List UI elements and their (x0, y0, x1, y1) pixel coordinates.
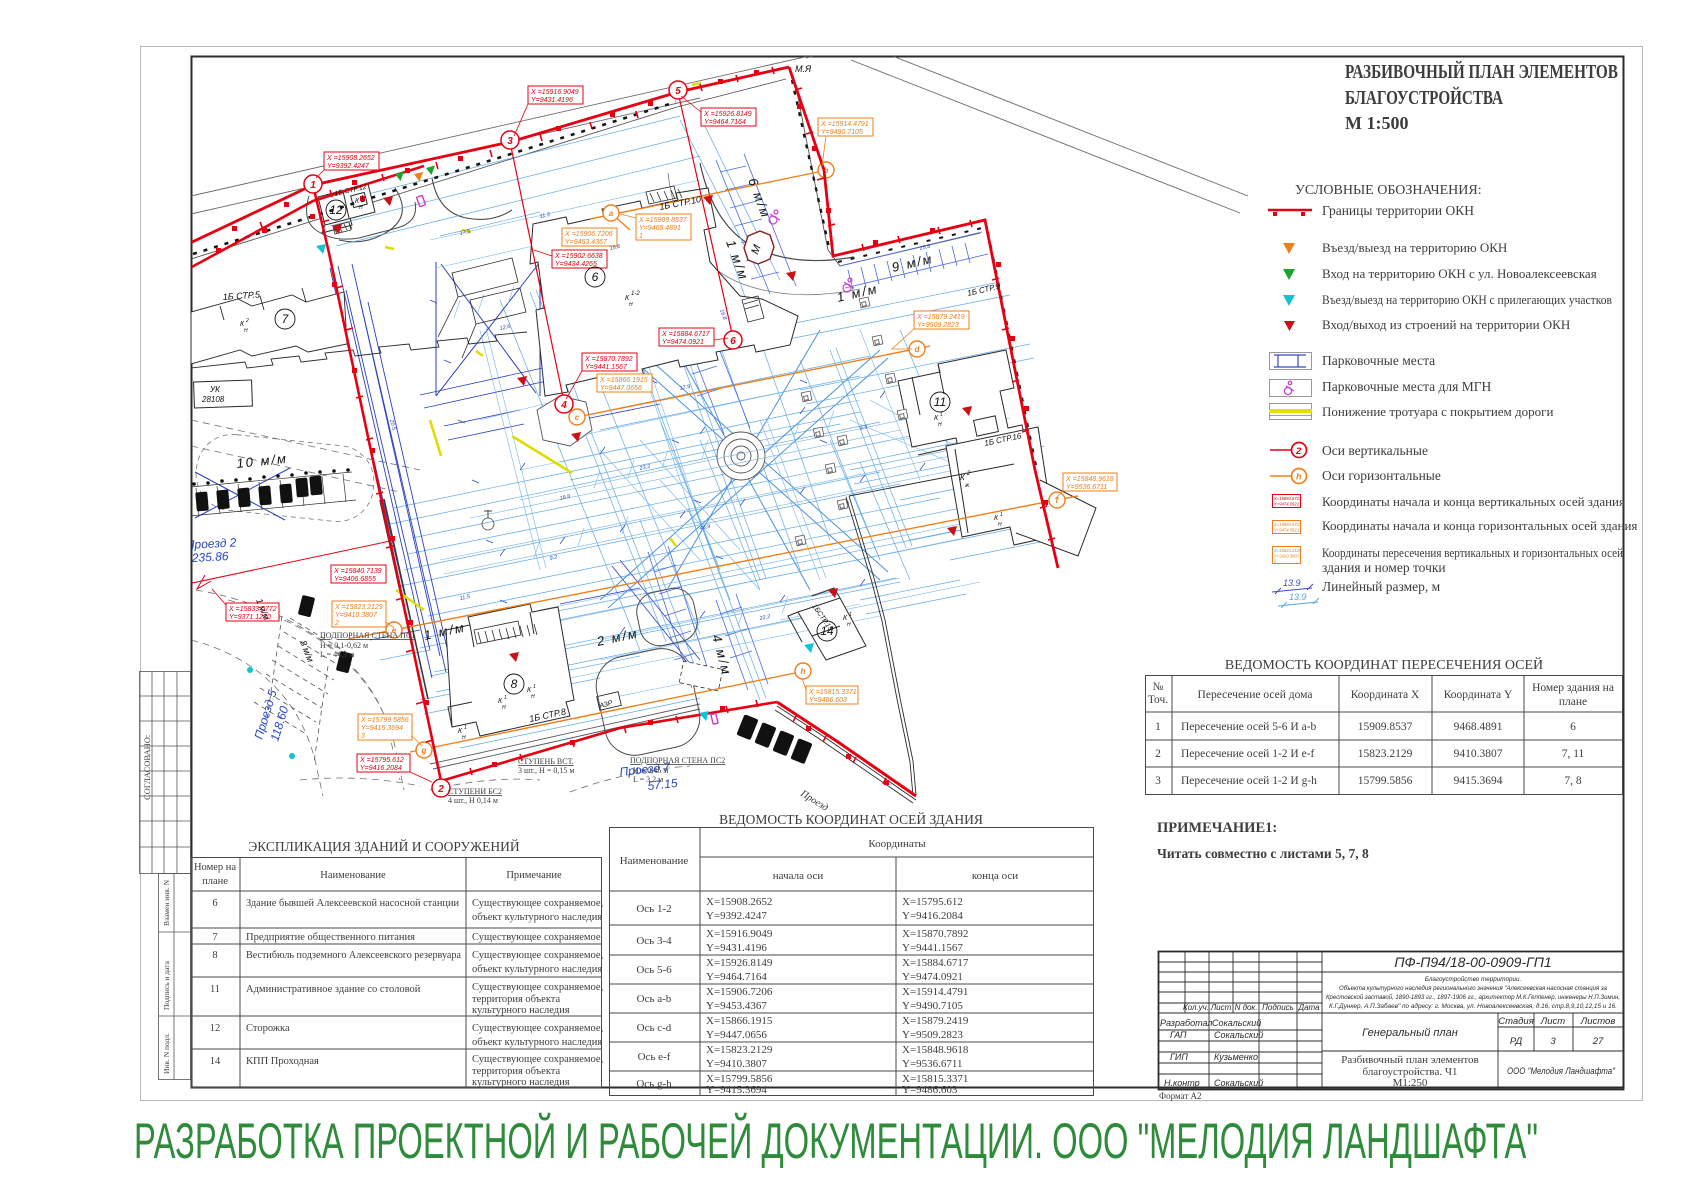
svg-text:7, 11: 7, 11 (1562, 748, 1585, 760)
svg-text:235.86: 235.86 (190, 549, 229, 565)
svg-text:13.9: 13.9 (1289, 592, 1307, 602)
svg-text:1: 1 (639, 233, 643, 240)
svg-text:1: 1 (1155, 721, 1161, 733)
svg-text:Y=9410.3807: Y=9410.3807 (335, 612, 378, 619)
svg-text:X =15866.1915: X =15866.1915 (599, 377, 648, 384)
svg-text:Генеральный план: Генеральный план (1362, 1027, 1458, 1039)
svg-text:X =15823.2129: X =15823.2129 (334, 604, 383, 611)
svg-text:Административное здание со сто: Административное здание со столовой (246, 984, 421, 995)
svg-text:РД: РД (1510, 1036, 1523, 1047)
svg-text:5: 5 (675, 86, 681, 97)
svg-text:Пересечение осей 1-2 И e-f: Пересечение осей 1-2 И e-f (1181, 748, 1315, 760)
svg-text:РАЗРАБОТКА ПРОЕКТНОЙ И РАБОЧЕЙ: РАЗРАБОТКА ПРОЕКТНОЙ И РАБОЧЕЙ ДОКУМЕНТА… (134, 1112, 1538, 1169)
svg-text:Y=9486.603: Y=9486.603 (809, 697, 847, 704)
svg-text:15799.5856: 15799.5856 (1358, 775, 1413, 787)
svg-text:Формат А2: Формат А2 (1159, 1091, 1202, 1101)
svg-text:4: 4 (560, 400, 567, 411)
svg-text:X =15926.8149: X =15926.8149 (703, 111, 752, 118)
svg-text:1-2: 1-2 (631, 291, 640, 297)
svg-text:Вестибюль подземного Алексеевс: Вестибюль подземного Алексеевского резер… (246, 950, 461, 961)
svg-text:Пересечение осей 5-6 И a-b: Пересечение осей 5-6 И a-b (1181, 721, 1317, 733)
svg-text:Y=9474.0921: Y=9474.0921 (902, 971, 963, 983)
svg-text:2: 2 (245, 318, 249, 324)
svg-text:15909.8537: 15909.8537 (1358, 721, 1413, 733)
svg-text:Координата Y: Координата Y (1444, 689, 1513, 701)
svg-text:ж: ж (964, 483, 970, 489)
svg-text:Стадия: Стадия (1498, 1016, 1534, 1027)
svg-text:объект культурного наследия: объект культурного наследия (472, 912, 602, 923)
svg-text:Подпись и дата: Подпись и дата (162, 960, 171, 1010)
svg-text:2: 2 (1295, 446, 1302, 457)
svg-text:N док.: N док. (1235, 1003, 1258, 1012)
svg-text:Y=9434.4265: Y=9434.4265 (555, 261, 597, 268)
svg-text:Координата X: Координата X (1351, 689, 1420, 701)
svg-text:Существующее сохраняемое,: Существующее сохраняемое, (472, 1054, 603, 1065)
svg-text:X =15914.4791: X =15914.4791 (820, 121, 869, 128)
svg-text:3: 3 (507, 136, 513, 147)
svg-text:X=15884.6717: X=15884.6717 (1273, 522, 1302, 527)
svg-text:Н: Н (359, 205, 363, 211)
svg-text:Y=9410.3807: Y=9410.3807 (706, 1058, 767, 1070)
svg-text:территория объекта: территория объекта (472, 994, 560, 1005)
svg-text:Въезд/выезд на территорию ОКН: Въезд/выезд на территорию ОКН с прилегаю… (1322, 292, 1612, 307)
svg-text:1: 1 (849, 612, 852, 618)
svg-text:Ось e-f: Ось e-f (638, 1051, 671, 1063)
svg-text:ПОДПОРНАЯ СТЕНА ПС2: ПОДПОРНАЯ СТЕНА ПС2 (630, 756, 725, 765)
svg-text:Вход/выход из строений на терр: Вход/выход из строений на территории ОКН (1322, 317, 1570, 332)
svg-text:Крестовской заставой, 1890-189: Крестовской заставой, 1890-1893 гг., 189… (1326, 993, 1620, 1001)
svg-text:X =15909.8537: X =15909.8537 (638, 217, 688, 224)
svg-text:6: 6 (730, 336, 736, 347)
svg-text:X=15906.7206: X=15906.7206 (706, 986, 773, 998)
svg-text:Подпись: Подпись (1262, 1003, 1294, 1012)
svg-text:X=15823.2129: X=15823.2129 (706, 1044, 773, 1056)
svg-text:9410.3807: 9410.3807 (1454, 748, 1503, 760)
svg-text:14: 14 (210, 1056, 221, 1067)
svg-text:Н: Н (847, 622, 851, 628)
svg-text:Н.контр: Н.контр (1164, 1078, 1200, 1088)
svg-text:Y=9392.4247: Y=9392.4247 (327, 163, 370, 170)
svg-text:Н: Н (244, 328, 248, 334)
svg-text:Сокальский: Сокальский (1214, 1030, 1263, 1040)
svg-text:1: 1 (361, 195, 364, 201)
svg-text:X =15795.612: X =15795.612 (359, 757, 404, 764)
svg-text:Y=9392.4247: Y=9392.4247 (706, 910, 767, 922)
svg-text:8: 8 (511, 677, 518, 691)
svg-text:Координаты: Координаты (868, 838, 926, 850)
svg-text:М 1:500: М 1:500 (1345, 113, 1408, 133)
svg-text:Благоустройство территории.: Благоустройство территории. (1425, 975, 1521, 983)
svg-text:7: 7 (212, 932, 217, 943)
svg-text:X=15884.6717: X=15884.6717 (902, 957, 969, 969)
svg-text:Y=9490.7105: Y=9490.7105 (821, 129, 863, 136)
svg-text:территория объекта: территория объекта (472, 1066, 560, 1077)
svg-text:X =15840.7139: X =15840.7139 (333, 568, 382, 575)
svg-text:Н: Н (502, 705, 506, 711)
svg-text:6: 6 (1570, 721, 1576, 733)
svg-text:ВЕДОМОСТЬ КООРДИНАТ ОСЕЙ ЗДАНИ: ВЕДОМОСТЬ КООРДИНАТ ОСЕЙ ЗДАНИЯ (719, 812, 983, 827)
svg-text:КПП Проходная: КПП Проходная (246, 1056, 319, 1067)
svg-text:3 шт., Н = 0,15 м: 3 шт., Н = 0,15 м (518, 766, 574, 775)
svg-text:Парковочные места: Парковочные места (1322, 353, 1435, 368)
svg-text:БЛАГОУСТРОЙСТВА: БЛАГОУСТРОЙСТВА (1345, 87, 1503, 109)
svg-text:12: 12 (210, 1023, 221, 1034)
svg-text:объект культурного наследия: объект культурного наследия (472, 1037, 602, 1048)
svg-text:g: g (421, 746, 427, 755)
svg-text:Разработал: Разработал (1160, 1018, 1212, 1028)
svg-text:2: 2 (1155, 748, 1161, 760)
svg-text:ГАП: ГАП (1170, 1030, 1187, 1040)
svg-text:М1:250: М1:250 (1393, 1077, 1428, 1089)
svg-text:СОГЛАСОВАНО:: СОГЛАСОВАНО: (142, 735, 152, 800)
svg-text:Ось a-b: Ось a-b (637, 993, 672, 1005)
svg-text:3: 3 (1550, 1036, 1556, 1047)
svg-text:1: 1 (1000, 512, 1003, 518)
svg-text:Y=9415.3694: Y=9415.3694 (706, 1084, 767, 1096)
svg-text:11: 11 (934, 395, 946, 409)
svg-text:L = 44,3 м: L = 44,3 м (320, 650, 354, 659)
svg-text:h: h (1296, 472, 1302, 482)
svg-text:Наименование: Наименование (620, 855, 689, 867)
svg-text:Предприятие общественного пита: Предприятие общественного питания (246, 932, 415, 943)
svg-text:X=15914.4791: X=15914.4791 (902, 986, 968, 998)
svg-text:7, 8: 7, 8 (1564, 775, 1582, 787)
svg-text:9415.3694: 9415.3694 (1454, 775, 1503, 787)
svg-text:X =15906.7206: X =15906.7206 (564, 231, 613, 238)
svg-text:Сторожка: Сторожка (246, 1023, 290, 1034)
svg-text:2: 2 (966, 471, 971, 477)
svg-text:X =15848.9618: X =15848.9618 (1065, 476, 1114, 483)
svg-text:Н = 0,45 м: Н = 0,45 м (633, 766, 668, 775)
svg-text:27: 27 (1592, 1036, 1604, 1047)
svg-text:Сокальский: Сокальский (1214, 1078, 1263, 1088)
svg-text:c: c (575, 413, 580, 422)
svg-text:ПРИМЕЧАНИЕ1:: ПРИМЕЧАНИЕ1: (1157, 820, 1277, 836)
svg-text:Н: Н (531, 694, 535, 700)
svg-text:объект культурного наследия: объект культурного наследия (472, 964, 602, 975)
svg-text:a: a (609, 209, 614, 218)
svg-text:Y=9464.7164: Y=9464.7164 (704, 119, 746, 126)
svg-text:Понижение тротуара с покрытием: Понижение тротуара с покрытием дороги (1322, 404, 1553, 419)
svg-text:Ось 5-6: Ось 5-6 (636, 964, 672, 976)
svg-text:Наименование: Наименование (320, 870, 386, 881)
svg-text:Координаты начала и конца гори: Координаты начала и конца горизонтальных… (1322, 518, 1637, 533)
svg-text:Y=9416.2084: Y=9416.2084 (360, 765, 402, 772)
svg-text:СТУПЕНИ БС2: СТУПЕНИ БС2 (448, 787, 502, 796)
svg-text:X =15870.7892: X =15870.7892 (584, 356, 633, 363)
svg-text:Н: Н (462, 735, 466, 741)
svg-text:X =15902.6638: X =15902.6638 (554, 253, 603, 260)
svg-text:Читать совместно с листами 5,: Читать совместно с листами 5, 7, 8 (1157, 846, 1369, 861)
svg-text:Оси горизонтальные: Оси горизонтальные (1322, 468, 1441, 483)
svg-text:X =15884.6717: X =15884.6717 (661, 331, 711, 338)
svg-text:Вход на территорию ОКН с ул. Н: Вход на территорию ОКН с ул. Новоалексее… (1322, 266, 1597, 281)
svg-text:2: 2 (334, 620, 339, 627)
svg-text:13.9: 13.9 (1283, 578, 1301, 588)
svg-text:Y=9406.6855: Y=9406.6855 (334, 576, 376, 583)
svg-text:Кузьменко: Кузьменко (1214, 1052, 1258, 1062)
svg-text:Оси вертикальные: Оси вертикальные (1322, 443, 1428, 458)
svg-text:12: 12 (329, 203, 343, 217)
svg-text:Взамен инв. N: Взамен инв. N (162, 879, 171, 926)
svg-text:1: 1 (310, 180, 316, 191)
svg-text:4 шт., Н 0,14 м: 4 шт., Н 0,14 м (448, 796, 498, 805)
svg-text:культурного наследия: культурного наследия (472, 1077, 570, 1088)
svg-text:Существующее сохраняемое,: Существующее сохраняемое, (472, 982, 603, 993)
svg-text:Существующее сохраняемое,: Существующее сохраняемое, (472, 950, 603, 961)
svg-text:конца оси: конца оси (972, 870, 1018, 882)
svg-text:Y=9474.0921: Y=9474.0921 (662, 339, 704, 346)
svg-text:Y=9447.0656: Y=9447.0656 (706, 1029, 767, 1041)
svg-text:1: 1 (940, 412, 943, 418)
svg-text:3: 3 (1155, 775, 1161, 787)
svg-text:3: 3 (361, 733, 365, 740)
svg-text:X=15879.2419: X=15879.2419 (902, 1015, 969, 1027)
svg-text:Y=9441.1567: Y=9441.1567 (902, 942, 963, 954)
svg-text:М.Я: М.Я (795, 64, 812, 74)
svg-text:Н = 0,1-0,62 м: Н = 0,1-0,62 м (320, 641, 368, 650)
svg-text:ПФ-П94/18-00-0909-ГП1: ПФ-П94/18-00-0909-ГП1 (1394, 954, 1551, 970)
svg-text:X=15916.9049: X=15916.9049 (706, 928, 773, 940)
svg-text:Координаты пересечения вертика: Координаты пересечения вертикальных и го… (1322, 545, 1623, 560)
svg-text:Y=9410.3807: Y=9410.3807 (1274, 554, 1300, 559)
svg-text:Объекта культурного наследия р: Объекта культурного наследия регионально… (1339, 984, 1607, 992)
svg-text:Существующее сохраняемое,: Существующее сохраняемое, (472, 898, 603, 909)
svg-text:28108: 28108 (201, 395, 225, 404)
svg-text:Ось c-d: Ось c-d (637, 1022, 672, 1034)
svg-text:ПОДПОРНАЯ СТЕНА ПС1: ПОДПОРНАЯ СТЕНА ПС1 (320, 631, 415, 640)
svg-text:Y=9468.4891: Y=9468.4891 (639, 225, 681, 232)
svg-text:Н: Н (998, 522, 1002, 528)
svg-text:Y=9486.603: Y=9486.603 (902, 1084, 958, 1096)
svg-text:Y=9509.2823: Y=9509.2823 (902, 1029, 963, 1041)
svg-text:X =15799.5856: X =15799.5856 (360, 717, 409, 724)
svg-text:X =15916.9049: X =15916.9049 (530, 89, 579, 96)
svg-text:2: 2 (437, 784, 444, 795)
svg-text:Y=9474.0921: Y=9474.0921 (1274, 528, 1299, 533)
svg-text:Н: Н (938, 422, 942, 428)
svg-text:Здание бывшей Алексеевской нас: Здание бывшей Алексеевской насосной стан… (246, 898, 459, 909)
svg-text:ГИП: ГИП (1170, 1052, 1188, 1062)
svg-text:плане: плане (1559, 696, 1587, 708)
svg-text:К.Г.Дункер, А.П.Забаев" по адр: К.Г.Дункер, А.П.Забаев" по адресу: г. Мо… (1329, 1002, 1617, 1010)
svg-text:1: 1 (464, 725, 467, 731)
svg-text:здания и номер точки: здания и номер точки (1322, 560, 1446, 575)
svg-text:X=15848.9618: X=15848.9618 (902, 1044, 969, 1056)
svg-text:Y=9416.2084: Y=9416.2084 (902, 910, 963, 922)
svg-text:Кол.уч.: Кол.уч. (1183, 1003, 1209, 1012)
svg-text:культурного наследия: культурного наследия (472, 1005, 570, 1016)
svg-text:СТУПЕНЬ ВСТ.: СТУПЕНЬ ВСТ. (518, 757, 574, 766)
svg-text:1: 1 (504, 695, 507, 701)
svg-text:8: 8 (212, 950, 217, 961)
svg-text:X =15879.2419: X =15879.2419 (916, 314, 965, 321)
svg-text:плане: плане (202, 876, 228, 887)
svg-text:X=15870.7892: X=15870.7892 (902, 928, 968, 940)
svg-text:X =15815.3371: X =15815.3371 (808, 689, 857, 696)
svg-text:Пересечение осей дома: Пересечение осей дома (1198, 689, 1313, 701)
svg-text:Y=9464.7164: Y=9464.7164 (706, 971, 767, 983)
svg-text:Линейный размер, м: Линейный размер, м (1322, 579, 1441, 594)
svg-text:Y=9453.4367: Y=9453.4367 (706, 1000, 767, 1012)
svg-text:Y=9490.7105: Y=9490.7105 (902, 1000, 963, 1012)
svg-text:Ось g-h: Ось g-h (636, 1078, 672, 1090)
svg-text:Y=9509.2823: Y=9509.2823 (917, 322, 959, 329)
svg-text:№: № (1153, 681, 1164, 693)
svg-text:Y=9415.3694: Y=9415.3694 (361, 725, 403, 732)
svg-text:X=15823.2129: X=15823.2129 (1273, 548, 1302, 553)
svg-text:Лист: Лист (1540, 1016, 1566, 1027)
svg-text:Y=9474.0921: Y=9474.0921 (1274, 502, 1299, 507)
svg-text:L = 3,2 м: L = 3,2 м (633, 775, 663, 784)
svg-text:РАЗБИВОЧНЫЙ ПЛАН ЭЛЕМЕНТОВ: РАЗБИВОЧНЫЙ ПЛАН ЭЛЕМЕНТОВ (1345, 61, 1618, 83)
svg-text:1: 1 (533, 684, 536, 690)
svg-text:Разбивочный план элементов: Разбивочный план элементов (1341, 1054, 1478, 1066)
svg-text:Ось 3-4: Ось 3-4 (636, 935, 672, 947)
svg-text:11: 11 (210, 984, 220, 995)
svg-text:Инв. N подл.: Инв. N подл. (162, 1033, 171, 1074)
svg-text:Y=9447.0656: Y=9447.0656 (600, 385, 642, 392)
svg-text:X =15908.2652: X =15908.2652 (326, 155, 375, 162)
svg-text:начала оси: начала оси (773, 870, 824, 882)
svg-text:6: 6 (212, 898, 217, 909)
svg-text:ВЕДОМОСТЬ КООРДИНАТ ПЕРЕСЕЧЕНИ: ВЕДОМОСТЬ КООРДИНАТ ПЕРЕСЕЧЕНИЯ ОСЕЙ (1225, 656, 1543, 673)
svg-text:Дата: Дата (1297, 1003, 1320, 1012)
svg-text:Y=9536.6711: Y=9536.6711 (902, 1058, 963, 1070)
svg-text:Существующее сохраняемое,: Существующее сохраняемое, (472, 1023, 603, 1034)
svg-text:Ось 1-2: Ось 1-2 (636, 903, 671, 915)
svg-text:X=15926.8149: X=15926.8149 (706, 957, 773, 969)
svg-text:Y=9441.1567: Y=9441.1567 (585, 364, 628, 371)
svg-text:Лист: Лист (1210, 1003, 1232, 1012)
svg-text:X=15795.612: X=15795.612 (902, 896, 963, 908)
svg-text:Номер здания на: Номер здания на (1532, 682, 1614, 694)
svg-text:X=15866.1915: X=15866.1915 (706, 1015, 773, 1027)
svg-text:Въезд/выезд на территорию ОКН: Въезд/выезд на территорию ОКН (1322, 240, 1507, 255)
svg-text:Примечание: Примечание (506, 870, 562, 881)
svg-text:Y=9536.6711: Y=9536.6711 (1066, 484, 1107, 491)
svg-text:h: h (801, 667, 806, 676)
svg-text:Y=9431.4196: Y=9431.4196 (531, 97, 573, 104)
svg-text:УК: УК (209, 385, 221, 394)
svg-text:Y=9453.4367: Y=9453.4367 (565, 239, 608, 246)
svg-text:15823.2129: 15823.2129 (1358, 748, 1413, 760)
svg-text:Точ.: Точ. (1148, 694, 1168, 706)
svg-text:Сокальский: Сокальский (1212, 1018, 1261, 1028)
svg-text:Парковочные места для МГН: Парковочные места для МГН (1322, 379, 1492, 394)
svg-text:Н: Н (629, 302, 633, 308)
svg-text:Номер на: Номер на (194, 862, 236, 873)
svg-text:X=15908.2652: X=15908.2652 (706, 896, 772, 908)
svg-text:УСЛОВНЫЕ ОБОЗНАЧЕНИЯ:: УСЛОВНЫЕ ОБОЗНАЧЕНИЯ: (1295, 183, 1482, 198)
svg-text:9468.4891: 9468.4891 (1454, 721, 1503, 733)
svg-text:X=15884.6717: X=15884.6717 (1273, 496, 1302, 501)
svg-text:6: 6 (592, 270, 599, 284)
svg-text:Существующее сохраняемое: Существующее сохраняемое (472, 932, 601, 943)
svg-text:ЭКСПЛИКАЦИЯ ЗДАНИЙ И СООРУЖЕНИ: ЭКСПЛИКАЦИЯ ЗДАНИЙ И СООРУЖЕНИЙ (248, 839, 520, 854)
svg-text:ООО "Мелодия Ландшафта": ООО "Мелодия Ландшафта" (1507, 1066, 1616, 1076)
svg-text:Y=9431.4196: Y=9431.4196 (706, 942, 767, 954)
svg-text:Пересечение осей 1-2 И g-h: Пересечение осей 1-2 И g-h (1181, 775, 1317, 787)
svg-text:Листов: Листов (1580, 1016, 1616, 1027)
svg-text:Границы территории ОКН: Границы территории ОКН (1322, 203, 1474, 218)
svg-text:Координаты начала и конца верт: Координаты начала и конца вертикальных о… (1322, 494, 1625, 509)
